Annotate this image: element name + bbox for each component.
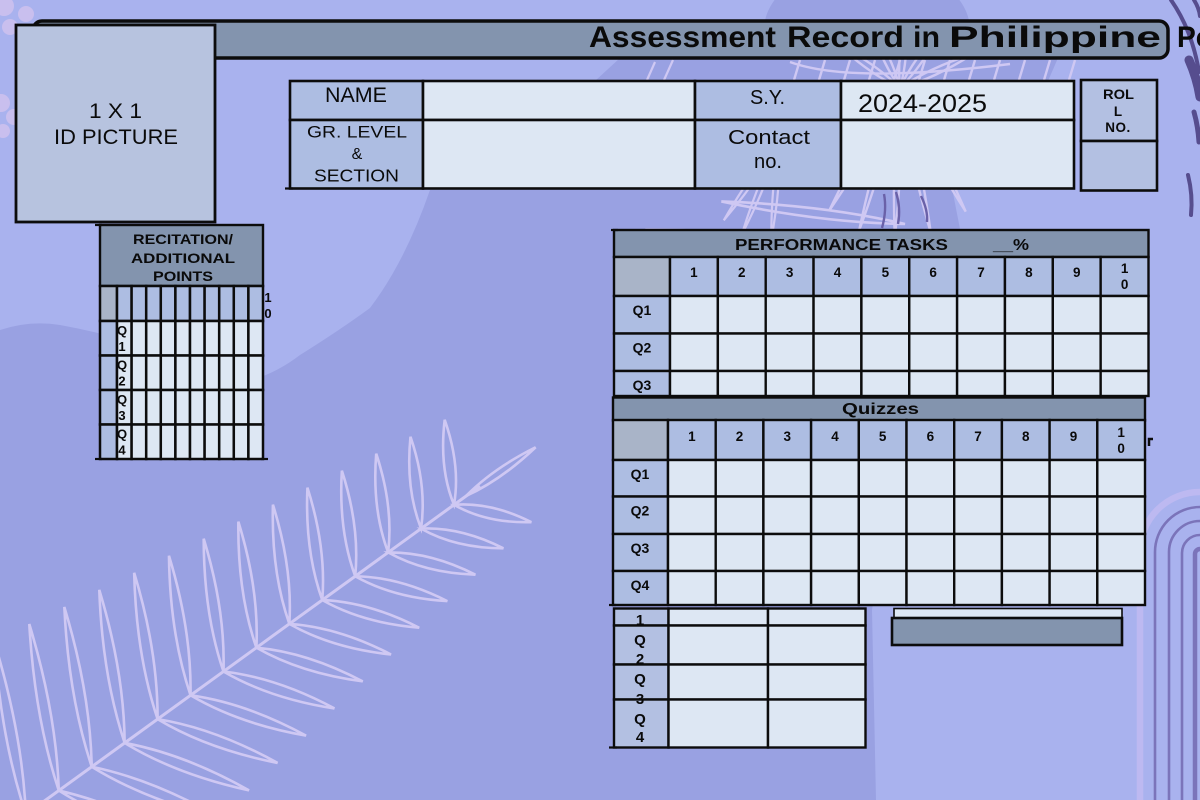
svg-text:ID PICTURE: ID PICTURE: [54, 126, 178, 149]
svg-text:SECTION: SECTION: [314, 166, 399, 186]
svg-text:Q2: Q2: [631, 503, 650, 519]
svg-text:2: 2: [636, 651, 644, 668]
svg-text:7: 7: [974, 429, 982, 444]
svg-text:Q3: Q3: [631, 540, 650, 556]
svg-text:Record: Record: [787, 21, 904, 54]
svg-text:0: 0: [264, 306, 271, 321]
svg-text:POINTS: POINTS: [153, 268, 213, 284]
svg-text:Assessment: Assessment: [589, 21, 776, 54]
svg-text:9: 9: [1070, 429, 1078, 444]
svg-text:8: 8: [1025, 265, 1033, 280]
svg-text:&: &: [352, 146, 363, 163]
svg-text:5: 5: [879, 429, 887, 444]
svg-text:5: 5: [882, 265, 890, 280]
svg-text:3: 3: [783, 429, 791, 444]
svg-text:1: 1: [264, 290, 271, 305]
svg-text:0: 0: [1117, 441, 1125, 456]
svg-text:4: 4: [834, 265, 842, 280]
svg-text:1: 1: [1117, 425, 1125, 440]
svg-text:8: 8: [1022, 429, 1030, 444]
svg-text:1: 1: [118, 339, 125, 354]
svg-text:4: 4: [636, 729, 645, 746]
svg-text:Q: Q: [117, 358, 127, 373]
svg-text:Quizzes: Quizzes: [842, 401, 919, 418]
svg-text:no.: no.: [754, 151, 782, 173]
svg-text:GR. LEVEL: GR. LEVEL: [307, 123, 407, 142]
svg-text:3: 3: [118, 408, 125, 423]
svg-text:1: 1: [636, 612, 644, 629]
svg-text:1: 1: [1121, 261, 1129, 276]
svg-text:Q: Q: [634, 711, 646, 728]
svg-text:2: 2: [736, 429, 744, 444]
svg-text:1: 1: [688, 429, 696, 444]
svg-text:Q4: Q4: [631, 577, 650, 593]
svg-text:3: 3: [636, 691, 644, 708]
svg-text:S.Y.: S.Y.: [750, 87, 785, 109]
svg-text:L: L: [1114, 104, 1122, 119]
svg-text:Q: Q: [117, 392, 127, 407]
svg-text:ADDITIONAL: ADDITIONAL: [131, 250, 236, 266]
svg-text:in: in: [913, 21, 940, 54]
svg-text:4: 4: [118, 443, 126, 458]
svg-text:__%: __%: [992, 237, 1029, 254]
svg-text:Q: Q: [117, 323, 127, 338]
svg-text:2: 2: [118, 374, 125, 389]
svg-text:PERFORMANCE TASKS: PERFORMANCE TASKS: [735, 237, 948, 254]
svg-text:6: 6: [927, 429, 935, 444]
svg-text:Philippine: Philippine: [949, 21, 1161, 54]
svg-text:9: 9: [1073, 265, 1081, 280]
svg-text:3: 3: [786, 265, 794, 280]
svg-text:1 X 1: 1 X 1: [89, 100, 142, 123]
svg-text:1: 1: [690, 265, 698, 280]
svg-text:ROL: ROL: [1103, 87, 1134, 102]
svg-text:2: 2: [738, 265, 746, 280]
svg-text:2024-2025: 2024-2025: [858, 90, 987, 118]
svg-text:Q1: Q1: [633, 302, 652, 318]
svg-text:7: 7: [977, 265, 985, 280]
svg-text:Contact: Contact: [728, 127, 811, 149]
svg-text:RECITATION/: RECITATION/: [133, 231, 233, 247]
svg-text:Po: Po: [1177, 21, 1200, 54]
svg-text:Q2: Q2: [633, 340, 652, 356]
svg-text:0: 0: [1121, 277, 1129, 292]
svg-text:Q: Q: [634, 671, 646, 688]
svg-text:Q: Q: [634, 632, 646, 649]
svg-text:NO.: NO.: [1105, 120, 1131, 135]
svg-text:Q1: Q1: [631, 466, 650, 482]
svg-text:4: 4: [831, 429, 839, 444]
svg-text:Q: Q: [117, 427, 127, 442]
svg-text:6: 6: [929, 265, 937, 280]
svg-text:NAME: NAME: [325, 84, 387, 107]
svg-text:Q3: Q3: [633, 377, 652, 393]
